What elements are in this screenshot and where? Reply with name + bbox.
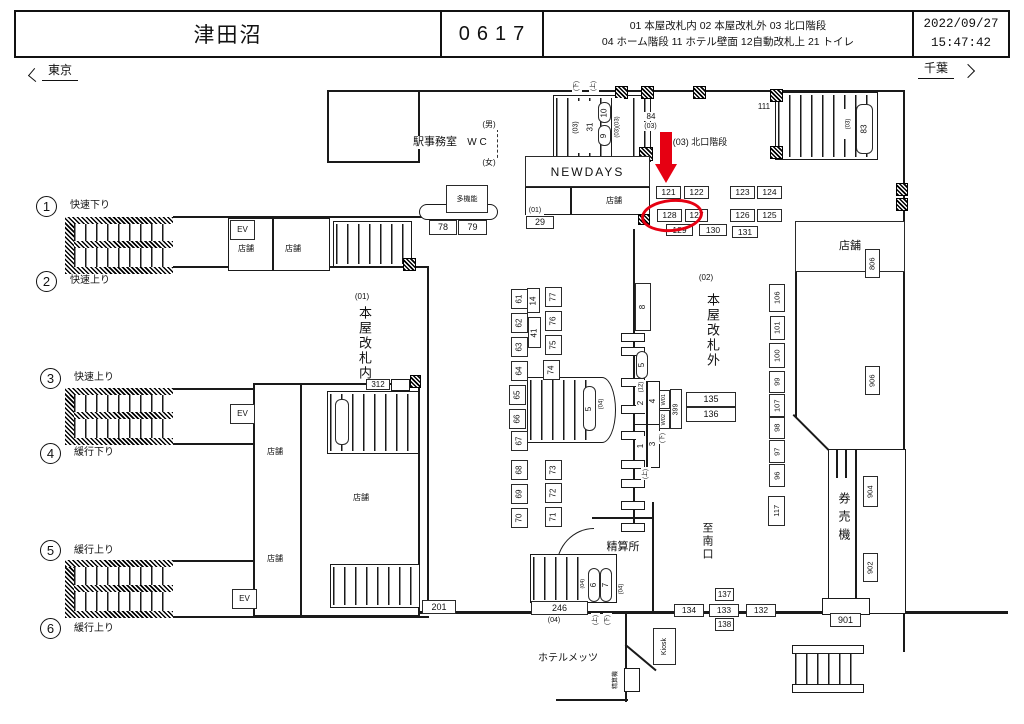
label-(上): (上) xyxy=(641,467,651,480)
label-店舗: 店舗 xyxy=(601,195,627,206)
stairs-platform-1-2 xyxy=(65,217,173,274)
label-130: 130 xyxy=(699,224,727,236)
label-901: 901 xyxy=(830,613,861,627)
label-77: 77 xyxy=(545,287,562,307)
label-100: 100 xyxy=(769,343,785,368)
label-117: 117 xyxy=(768,496,785,526)
platform-6-label: 緩行上り xyxy=(68,623,120,635)
platform-3-number: 3 xyxy=(40,368,61,389)
wall-diagonal-right xyxy=(793,414,829,450)
platform-4-number: 4 xyxy=(40,443,61,464)
label-(03)(03): (03)(03) xyxy=(612,98,624,156)
gate-tick xyxy=(621,333,645,342)
label-(01): (01) xyxy=(352,292,372,302)
highlight-arrow-head xyxy=(655,164,677,183)
label-111: 111 xyxy=(755,102,773,111)
platform-5-label: 緩行上り xyxy=(68,545,120,557)
wall-diagonal-kiosk xyxy=(625,644,657,671)
platform-3-label: 快速上り xyxy=(68,372,120,384)
label-136: 136 xyxy=(686,407,736,422)
gate-tick xyxy=(621,523,645,532)
wall-concourse-left xyxy=(427,266,429,613)
wall-fare-office-top xyxy=(592,517,652,519)
label-246: 246 xyxy=(531,601,588,615)
label-71: 71 xyxy=(545,507,562,527)
stairs-shop-block xyxy=(333,221,412,267)
label-(12): (12) xyxy=(636,380,646,394)
gate-tick xyxy=(621,479,645,488)
hatch-mark xyxy=(410,375,421,388)
label-123: 123 xyxy=(730,186,755,199)
ticket-machines-label: 券売機 xyxy=(832,478,850,560)
hotel-mets-label: ホテルメッツ xyxy=(534,652,602,665)
label-74: 74 xyxy=(543,360,560,380)
label-135: 135 xyxy=(686,392,736,407)
kiosk: Kiosk xyxy=(653,628,676,665)
label-63: 63 xyxy=(511,337,528,357)
wall-bottom-small xyxy=(556,699,628,701)
label-67: 67 xyxy=(511,431,528,451)
platform-edge-4 xyxy=(173,443,253,445)
platform-1-label: 快速下り xyxy=(64,200,116,212)
label-(04): (04) xyxy=(545,616,563,624)
label-EV: EV xyxy=(230,404,255,424)
label-3: 3 xyxy=(648,434,658,454)
hatch-mark xyxy=(770,89,783,102)
platform-edge-5 xyxy=(173,560,253,562)
label-62: 62 xyxy=(511,313,528,333)
label-79: 79 xyxy=(458,220,487,235)
small-box-next-to-312 xyxy=(391,379,410,391)
label-店舗: 店舗 xyxy=(262,553,288,564)
label-69: 69 xyxy=(511,484,528,504)
label-66: 66 xyxy=(509,409,526,429)
stairs-platform-3-4 xyxy=(65,388,173,445)
label-122: 122 xyxy=(684,186,709,199)
label-(03): (03) xyxy=(640,122,661,131)
station-office-room xyxy=(327,90,420,163)
label-4: 4 xyxy=(648,391,658,411)
label-107: 107 xyxy=(769,394,785,417)
stairs-center xyxy=(527,377,589,443)
label-904: 904 xyxy=(863,476,878,507)
label-106: 106 xyxy=(769,284,785,312)
outside-gates-area-label: 本屋改札外 xyxy=(701,286,719,374)
label-101: 101 xyxy=(770,316,785,340)
shop-divider xyxy=(272,218,274,271)
label-399: 399 xyxy=(670,389,682,429)
platform-edge-3 xyxy=(173,388,253,390)
label-(上): (上) xyxy=(591,613,600,627)
label-精算機: 精算機 xyxy=(609,665,622,695)
label-131: 131 xyxy=(732,226,758,238)
wall-fare-office-right xyxy=(652,502,654,614)
label-312: 312 xyxy=(366,379,390,390)
label-75: 75 xyxy=(545,335,562,355)
hatch-mark xyxy=(403,258,416,271)
label-(女): (女) xyxy=(480,158,498,168)
label-96: 96 xyxy=(769,464,785,487)
label-133: 133 xyxy=(709,604,739,617)
ticket-block-divider xyxy=(855,449,857,614)
label-(01): (01) xyxy=(526,206,544,215)
label-(04): (04) xyxy=(597,395,606,413)
label-138: 138 xyxy=(715,618,734,631)
label-84: 84 xyxy=(643,112,659,121)
label-(男): (男) xyxy=(480,120,498,130)
label-店舗: 店舗 xyxy=(280,243,306,254)
label-5: 5 xyxy=(636,351,648,379)
label-(03): (03) xyxy=(843,109,853,139)
ticket-machine-line-1 xyxy=(836,450,838,480)
label-97: 97 xyxy=(769,440,785,463)
label-73: 73 xyxy=(545,460,562,480)
fare-adjustment-office-label: 精算所 xyxy=(598,541,648,554)
label-5: 5 xyxy=(583,386,596,431)
label-EV: EV xyxy=(230,220,255,240)
label-902: 902 xyxy=(863,553,878,582)
label-W02: W02 xyxy=(659,410,670,429)
label-(03): (03) xyxy=(570,101,582,153)
label-(04): (04) xyxy=(617,580,626,597)
label-70: 70 xyxy=(511,508,528,528)
ticket-machine-line-2 xyxy=(845,450,847,480)
newdays-shop: NEWDAYS xyxy=(525,156,650,187)
hatch-mark xyxy=(693,86,706,99)
label-68: 68 xyxy=(511,460,528,480)
wall-right-block xyxy=(795,272,797,417)
label-132: 132 xyxy=(746,604,776,617)
label-8: 8 xyxy=(635,283,651,331)
label-(上): (上) xyxy=(589,79,599,92)
label-134: 134 xyxy=(674,604,704,617)
label-14: 14 xyxy=(527,288,540,313)
label-店舗: 店舗 xyxy=(233,243,259,254)
label-店舗: 店舗 xyxy=(348,492,374,503)
platform-5-number: 5 xyxy=(40,540,61,561)
shop-row-divider xyxy=(570,187,572,215)
label-(下): (下) xyxy=(603,613,612,627)
platform-2-number: 2 xyxy=(36,271,57,292)
stairs-platform-5-6 xyxy=(65,560,173,618)
station-office-label: 駅事務室 xyxy=(404,136,466,149)
label-137: 137 xyxy=(715,588,734,601)
label-(下): (下) xyxy=(572,79,582,92)
label-906: 906 xyxy=(865,366,880,395)
stairs-bottom-right xyxy=(792,645,864,694)
label-41: 41 xyxy=(528,317,541,348)
label-EV: EV xyxy=(232,589,257,609)
hatch-mark xyxy=(896,198,908,211)
inside-gates-area-label: 本屋改札内 xyxy=(353,303,371,383)
label-124: 124 xyxy=(757,186,782,199)
label-(04): (04) xyxy=(580,576,588,592)
label-10: 10 xyxy=(598,102,611,123)
label-72: 72 xyxy=(545,483,562,503)
fare-machine-box xyxy=(624,668,640,692)
label-126: 126 xyxy=(730,209,755,222)
label-店舗: 店舗 xyxy=(262,446,288,457)
label-125: 125 xyxy=(757,209,782,222)
label-98: 98 xyxy=(769,417,785,439)
label-76: 76 xyxy=(545,311,562,331)
platform-2-label: 快速上り xyxy=(64,275,116,287)
stairs-left-building-top xyxy=(327,391,419,454)
label-9: 9 xyxy=(598,125,611,146)
label-31: 31 xyxy=(584,101,597,153)
label-99: 99 xyxy=(769,371,785,393)
platform-6-number: 6 xyxy=(40,618,61,639)
highlight-arrow xyxy=(660,132,672,166)
shop-upper-right: 店舗 xyxy=(795,221,905,272)
label-1: 1 xyxy=(636,436,646,456)
label-78: 78 xyxy=(429,220,457,235)
label-W01: W01 xyxy=(659,390,670,409)
floor-plan: (下)(上)(03)31109(03)(03)84(03)(03) 北口階段11… xyxy=(0,0,1024,724)
label-6: 6 xyxy=(588,568,600,602)
label-(下): (下) xyxy=(658,431,668,444)
hatch-mark xyxy=(896,183,908,196)
label-83: 83 xyxy=(856,104,873,154)
hatch-mark xyxy=(770,146,783,159)
gate-tick xyxy=(621,501,645,510)
stairs-left-building-bottom xyxy=(330,564,420,608)
north-exit-stairs-label: (03) 北口階段 xyxy=(663,136,737,148)
label-65: 65 xyxy=(509,385,526,405)
label-(02): (02) xyxy=(695,273,717,283)
station-layout-diagram: 津田沼 0617 01 本屋改札内 02 本屋改札外 03 北口階段 04 ホー… xyxy=(0,0,1024,724)
platform-4-label: 緩行下り xyxy=(68,447,120,459)
label-2: 2 xyxy=(636,393,646,413)
label-121: 121 xyxy=(656,186,681,199)
shop-building-divider xyxy=(300,383,302,617)
label-61: 61 xyxy=(511,289,528,309)
multifunction-toilet: 多機能 xyxy=(446,185,488,213)
label-201: 201 xyxy=(422,600,456,614)
platform-1-number: 1 xyxy=(36,196,57,217)
label-64: 64 xyxy=(511,361,528,381)
label-806: 806 xyxy=(865,249,880,278)
label-29: 29 xyxy=(526,216,554,229)
wc-label: W C xyxy=(464,137,490,148)
hatch-mark xyxy=(641,86,654,99)
to-south-exit-label: 至南口 xyxy=(696,515,712,567)
label-7: 7 xyxy=(600,568,612,602)
